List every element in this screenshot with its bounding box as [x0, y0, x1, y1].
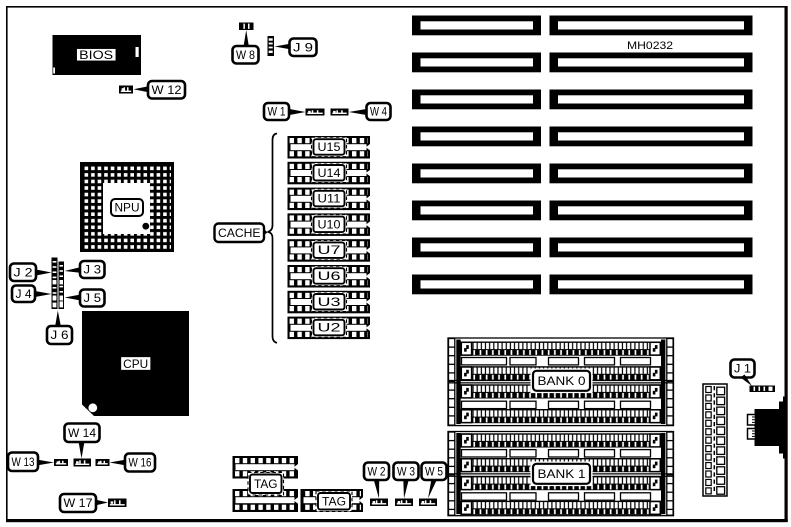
svg-text:U2: U2 — [318, 323, 341, 335]
svg-text:J 9: J 9 — [293, 40, 313, 54]
svg-text:BANK 0: BANK 0 — [538, 374, 586, 388]
svg-text:U14: U14 — [318, 168, 342, 180]
svg-text:MH0232: MH0232 — [627, 40, 673, 52]
svg-text:TAG: TAG — [254, 479, 278, 491]
svg-text:W 4: W 4 — [370, 105, 387, 119]
svg-text:U6: U6 — [318, 271, 341, 283]
svg-text:W 8: W 8 — [236, 48, 255, 62]
svg-text:J 2: J 2 — [14, 265, 33, 279]
svg-text:U10: U10 — [318, 219, 341, 231]
svg-text:W 5: W 5 — [425, 464, 443, 478]
svg-text:W 13: W 13 — [12, 455, 35, 469]
svg-text:TAG: TAG — [322, 496, 346, 508]
svg-text:J 4: J 4 — [16, 287, 32, 301]
svg-text:W 14: W 14 — [68, 426, 96, 440]
svg-text:W 1: W 1 — [268, 105, 286, 119]
svg-text:W 17: W 17 — [64, 496, 93, 510]
svg-text:U7: U7 — [318, 245, 341, 257]
svg-text:BIOS: BIOS — [79, 48, 113, 62]
svg-text:W 16: W 16 — [129, 456, 152, 470]
svg-text:NPU: NPU — [115, 203, 140, 215]
svg-text:CACHE: CACHE — [218, 226, 261, 240]
svg-text:BANK 1: BANK 1 — [538, 467, 586, 481]
svg-text:W 12: W 12 — [152, 83, 182, 97]
svg-text:J 6: J 6 — [51, 328, 69, 342]
svg-text:U15: U15 — [318, 142, 341, 154]
svg-text:W 2: W 2 — [368, 464, 386, 478]
svg-text:J 5: J 5 — [84, 291, 102, 305]
svg-text:U3: U3 — [318, 297, 341, 309]
svg-text:CPU: CPU — [123, 359, 148, 371]
svg-text:U11: U11 — [318, 194, 341, 206]
svg-text:J 3: J 3 — [84, 263, 102, 277]
svg-text:J 1: J 1 — [734, 362, 751, 376]
svg-text:W 3: W 3 — [397, 464, 415, 478]
